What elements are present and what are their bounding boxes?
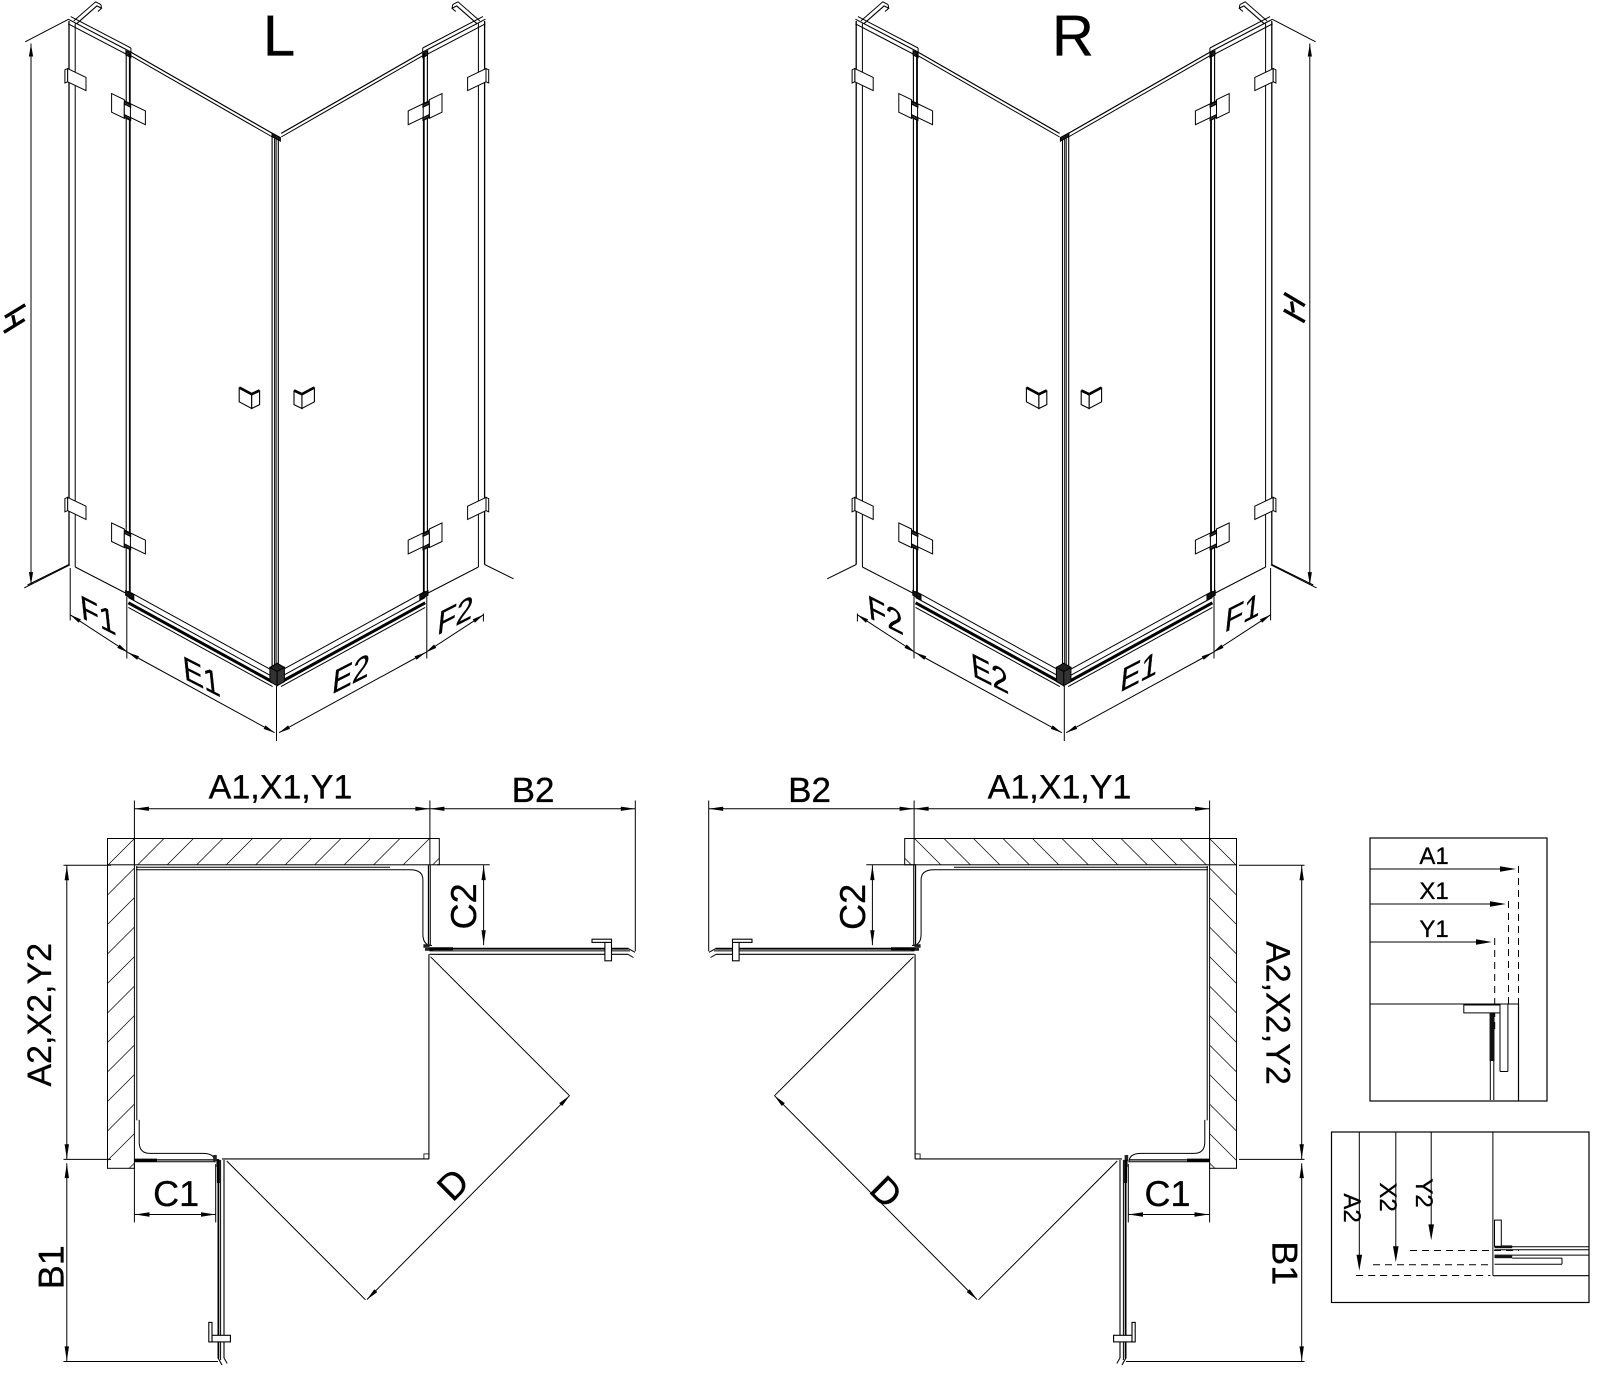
svg-text:C2: C2 [832,884,873,930]
svg-text:A2: A2 [1338,1193,1365,1222]
svg-text:A2,X2,Y2: A2,X2,Y2 [21,943,59,1087]
svg-text:Y1: Y1 [1419,916,1448,943]
svg-text:A2,X2,Y2: A2,X2,Y2 [1258,941,1296,1085]
svg-text:C1: C1 [153,1173,199,1214]
svg-text:A1,X1,Y1: A1,X1,Y1 [209,769,353,807]
svg-text:L: L [263,4,295,69]
svg-text:X1: X1 [1419,878,1448,905]
svg-text:B2: B2 [512,771,555,810]
svg-text:B2: B2 [788,771,831,810]
svg-text:X2: X2 [1374,1182,1401,1211]
svg-text:R: R [1052,4,1094,69]
svg-text:C2: C2 [443,883,484,929]
svg-text:Y2: Y2 [1410,1178,1437,1207]
svg-text:B1: B1 [31,1245,72,1289]
svg-text:A1,X1,Y1: A1,X1,Y1 [988,769,1132,807]
svg-text:A1: A1 [1419,843,1448,870]
svg-text:C1: C1 [1144,1173,1190,1214]
svg-text:B1: B1 [1265,1241,1306,1285]
